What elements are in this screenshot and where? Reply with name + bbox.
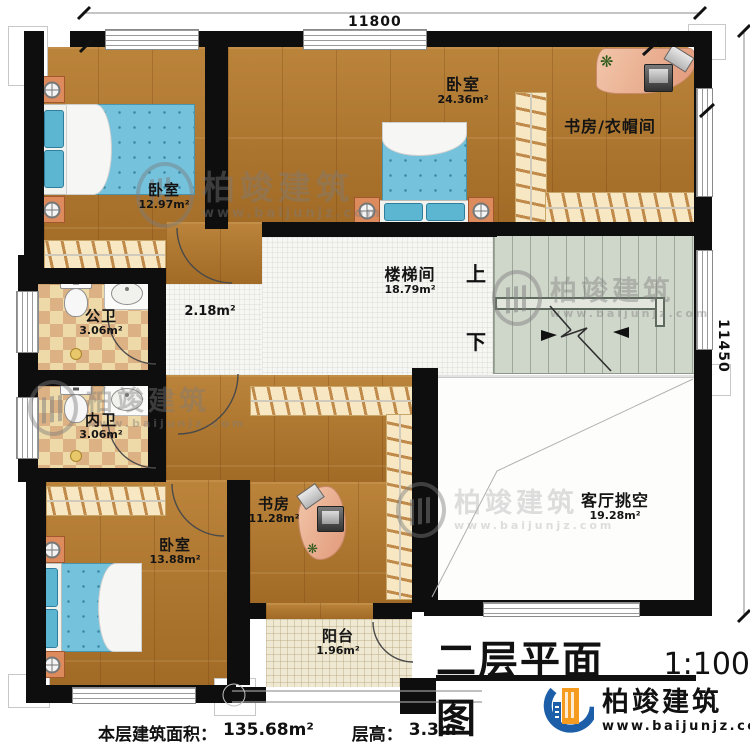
brand-name: 柏竣建筑 — [602, 689, 750, 716]
room-name: 公卫 — [68, 308, 134, 325]
wardrobe — [386, 414, 414, 600]
floor-drain — [70, 450, 82, 462]
wardrobe — [46, 486, 166, 516]
sink — [111, 282, 143, 305]
computer-monitor-icon — [317, 506, 344, 532]
room-label-bedroom-bottom-left: 卧室 13.88m² — [125, 537, 225, 567]
room-area: 3.06m² — [68, 325, 134, 338]
room-label-bedroom-top-left: 卧室 12.97m² — [114, 182, 214, 212]
wardrobe — [44, 240, 166, 270]
window — [483, 602, 640, 617]
floor-vestibule — [166, 222, 262, 284]
room-label-bedroom-top-middle: 卧室 24.36m² — [408, 76, 518, 107]
room-name: 内卫 — [68, 412, 134, 429]
window — [696, 250, 713, 350]
room-area: 3.06m² — [68, 429, 134, 442]
wardrobe — [250, 386, 414, 416]
wall — [148, 268, 166, 482]
cloakroom-wardrobe — [545, 192, 696, 224]
bed-sheet — [66, 104, 112, 195]
room-area: 2.18m² — [178, 305, 242, 320]
room-area: 18.79m² — [368, 284, 452, 297]
nightstand — [468, 197, 494, 224]
bed-sheet — [98, 563, 142, 652]
bed-pillow — [384, 203, 423, 221]
room-label-private-bathroom: 内卫 3.06m² — [68, 412, 134, 442]
brand-logo-icon — [540, 682, 594, 740]
floor-living-void — [438, 377, 694, 601]
bed-pillow — [44, 110, 64, 148]
window — [16, 291, 39, 353]
room-area: 12.97m² — [114, 199, 214, 212]
room-area: 1.96m² — [300, 645, 376, 658]
room-label-hallway: 2.18m² — [178, 305, 242, 320]
dimension-top: 11800 — [348, 14, 402, 30]
floor-plan: ❋ ❋ 卧室 12.97m² 卧室 24.36m² 书房/衣帽间 — [0, 0, 750, 754]
cloakroom-wardrobe — [515, 92, 547, 224]
floor-area-value: 135.68m² — [223, 720, 314, 745]
room-name: 卧室 — [114, 182, 214, 199]
brand-logo: 柏竣建筑 www.baijunjz.com — [540, 682, 750, 740]
brand-url: www.baijunjz.com — [602, 720, 750, 733]
wall — [18, 268, 166, 284]
room-label-stairwell: 楼梯间 18.79m² — [368, 266, 452, 297]
window — [105, 29, 199, 50]
column — [400, 678, 436, 714]
room-name: 书房/衣帽间 — [545, 118, 675, 136]
computer-monitor-icon — [644, 64, 673, 92]
room-area: 19.28m² — [552, 510, 678, 523]
window — [72, 687, 196, 704]
floor-height-value: 3.3m — [409, 720, 457, 745]
bed-pillow — [426, 203, 465, 221]
room-name: 楼梯间 — [368, 266, 452, 284]
floor-drain — [70, 348, 82, 360]
dimension-right: 11450 — [715, 319, 731, 369]
room-name: 卧室 — [408, 76, 518, 94]
bed-pillow — [44, 150, 64, 188]
room-label-balcony: 阳台 1.96m² — [300, 628, 376, 658]
wall — [230, 603, 266, 619]
room-name: 卧室 — [125, 537, 225, 554]
wall — [26, 480, 46, 703]
wall — [412, 368, 438, 612]
stair-handrail — [495, 297, 665, 310]
wall — [230, 687, 266, 703]
plant-icon: ❋ — [307, 543, 318, 556]
stair-up-label: 上 — [466, 258, 486, 287]
room-label-public-bathroom: 公卫 3.06m² — [68, 308, 134, 338]
stair-handrail — [655, 297, 665, 327]
wall — [373, 603, 412, 619]
sink — [111, 388, 143, 411]
floor-balcony-doorway — [266, 603, 373, 619]
floor-hallway — [262, 232, 493, 375]
wall — [497, 222, 697, 236]
room-area: 11.28m² — [228, 513, 320, 526]
wall — [18, 370, 166, 386]
room-name: 阳台 — [300, 628, 376, 645]
window — [696, 88, 713, 197]
wall — [262, 222, 497, 237]
floor-hallway — [164, 284, 262, 375]
floor-info: 本层建筑面积：135.68m² 层高：3.3m — [98, 720, 457, 745]
room-area: 13.88m² — [125, 554, 225, 567]
window — [303, 29, 427, 50]
room-name: 客厅挑空 — [552, 492, 678, 510]
floor-area-label: 本层建筑面积： — [98, 720, 217, 745]
room-name: 书房 — [228, 496, 320, 513]
room-label-living-void: 客厅挑空 19.28m² — [552, 492, 678, 523]
room-label-study: 书房 11.28m² — [228, 496, 320, 526]
stair-down-label: 下 — [466, 326, 486, 355]
plant-icon: ❋ — [600, 54, 613, 70]
room-area: 24.36m² — [408, 94, 518, 107]
nightstand — [354, 197, 380, 224]
title-underline — [436, 675, 696, 681]
window — [16, 397, 39, 459]
wall — [18, 468, 166, 482]
wall — [24, 31, 44, 268]
floor-height-label: 层高： — [352, 720, 403, 745]
room-label-study-cloakroom: 书房/衣帽间 — [545, 118, 675, 136]
